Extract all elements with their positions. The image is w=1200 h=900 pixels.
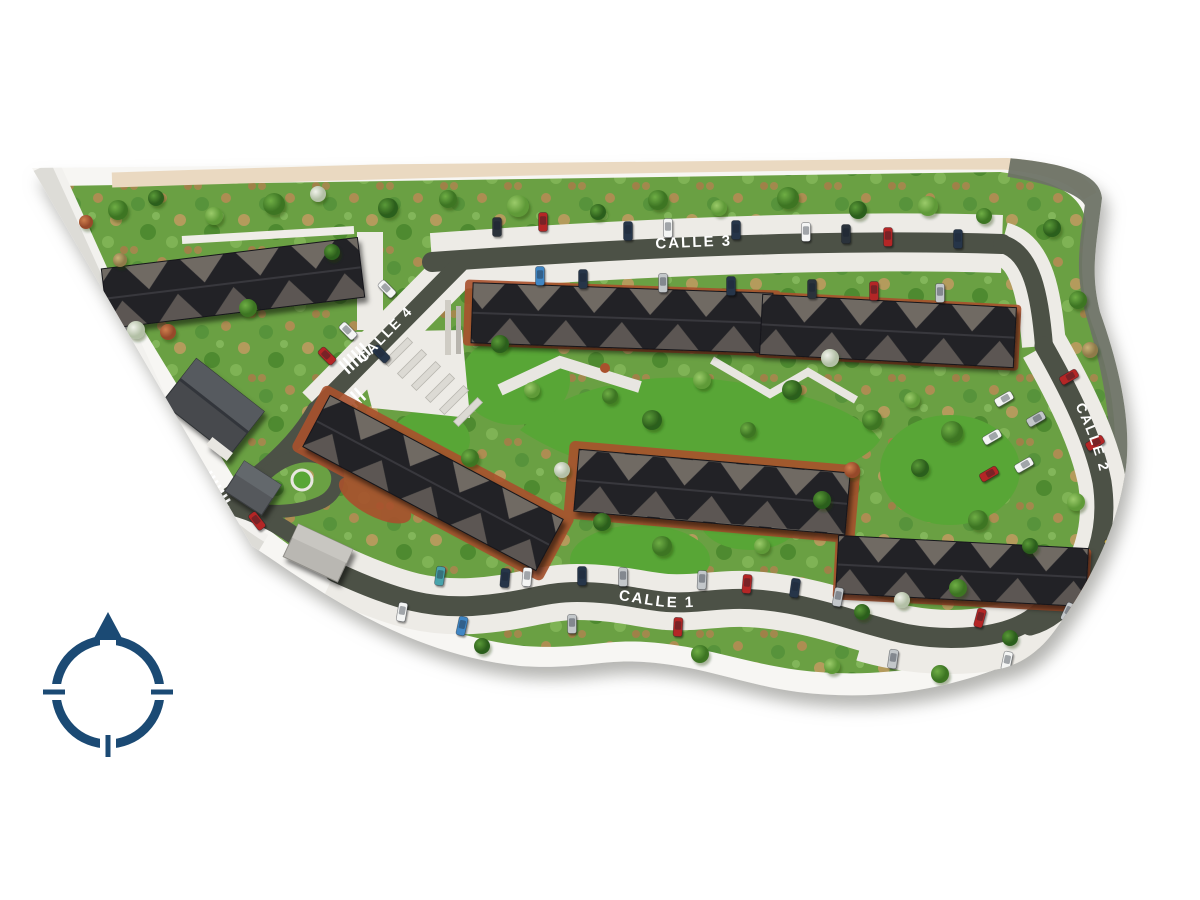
parked-car — [673, 617, 683, 636]
tree — [652, 536, 672, 556]
parked-car — [579, 270, 588, 289]
tree — [976, 208, 992, 224]
tree — [968, 510, 988, 530]
parked-car — [870, 282, 879, 301]
tree — [86, 292, 102, 308]
tree — [1067, 493, 1085, 511]
tree — [777, 187, 799, 209]
site-plan-image: CALLE 3 CALLE 1 CALLE 2 CALLE 4 AVENIDA … — [0, 0, 1200, 900]
parked-car — [808, 280, 817, 299]
tree — [133, 411, 151, 429]
tree — [109, 339, 127, 357]
tree — [593, 513, 611, 531]
parked-car — [727, 277, 736, 296]
tree — [491, 335, 509, 353]
parked-car — [732, 221, 741, 240]
tree — [127, 321, 145, 339]
tree — [894, 592, 910, 608]
tree — [1043, 219, 1061, 237]
tree — [1069, 291, 1087, 309]
tree — [862, 410, 882, 430]
tree — [642, 410, 662, 430]
parked-car — [493, 218, 502, 237]
tree — [813, 491, 831, 509]
parked-car — [936, 284, 945, 303]
street-label-calle-3: CALLE 3 — [655, 233, 732, 253]
tree — [239, 299, 257, 317]
tree — [854, 604, 870, 620]
tree — [378, 198, 398, 218]
tree — [113, 253, 127, 267]
tree — [648, 190, 668, 210]
parked-car — [842, 225, 851, 244]
loop-island — [292, 470, 312, 490]
tree — [691, 645, 709, 663]
tree — [439, 190, 457, 208]
parked-car — [884, 228, 893, 247]
parked-car — [522, 567, 533, 587]
tree — [149, 443, 167, 461]
tree — [188, 470, 204, 486]
tree — [474, 638, 490, 654]
tree — [148, 190, 164, 206]
parked-car — [664, 219, 673, 238]
tree — [782, 380, 802, 400]
tree — [821, 349, 839, 367]
parked-car — [742, 574, 753, 594]
tree — [507, 195, 529, 217]
tree — [160, 324, 176, 340]
building-block-b2 — [760, 294, 1017, 367]
tree — [343, 619, 361, 637]
masterplan-svg: CALLE 3 CALLE 1 CALLE 2 CALLE 4 AVENIDA … — [0, 0, 1200, 900]
tree — [590, 204, 606, 220]
parked-car — [954, 230, 963, 249]
tree — [79, 215, 93, 229]
tree — [1022, 538, 1038, 554]
parked-car — [290, 578, 306, 599]
tree — [279, 583, 297, 601]
tree — [911, 459, 929, 477]
tree — [263, 193, 285, 215]
tree — [97, 381, 111, 395]
tree — [849, 201, 867, 219]
parked-car — [802, 223, 811, 242]
tree — [602, 388, 618, 404]
parked-car — [697, 570, 707, 589]
parked-car — [539, 213, 548, 232]
tree — [754, 538, 770, 554]
parked-car — [500, 568, 511, 588]
tree — [205, 207, 223, 225]
tree — [949, 579, 967, 597]
tree — [711, 200, 727, 216]
parked-car — [624, 222, 633, 241]
north-arrow-icon — [93, 612, 123, 640]
tree — [1002, 630, 1018, 646]
tree — [59, 243, 77, 261]
tree — [108, 200, 128, 220]
tree — [461, 449, 479, 467]
parked-car — [578, 567, 587, 586]
tree — [310, 186, 326, 202]
tree — [824, 658, 840, 674]
tree — [693, 371, 711, 389]
tree — [554, 462, 570, 478]
tree — [1082, 342, 1098, 358]
parked-car — [659, 274, 668, 293]
compass-north-indicator — [43, 612, 173, 757]
parked-car — [568, 615, 577, 634]
tree — [324, 244, 340, 260]
parked-car — [536, 267, 545, 286]
parked-car — [619, 568, 628, 587]
tree — [918, 196, 938, 216]
tree — [904, 392, 920, 408]
tree — [740, 422, 756, 438]
tree — [844, 462, 860, 478]
tree — [941, 421, 963, 443]
tree — [524, 382, 540, 398]
tree — [931, 665, 949, 683]
